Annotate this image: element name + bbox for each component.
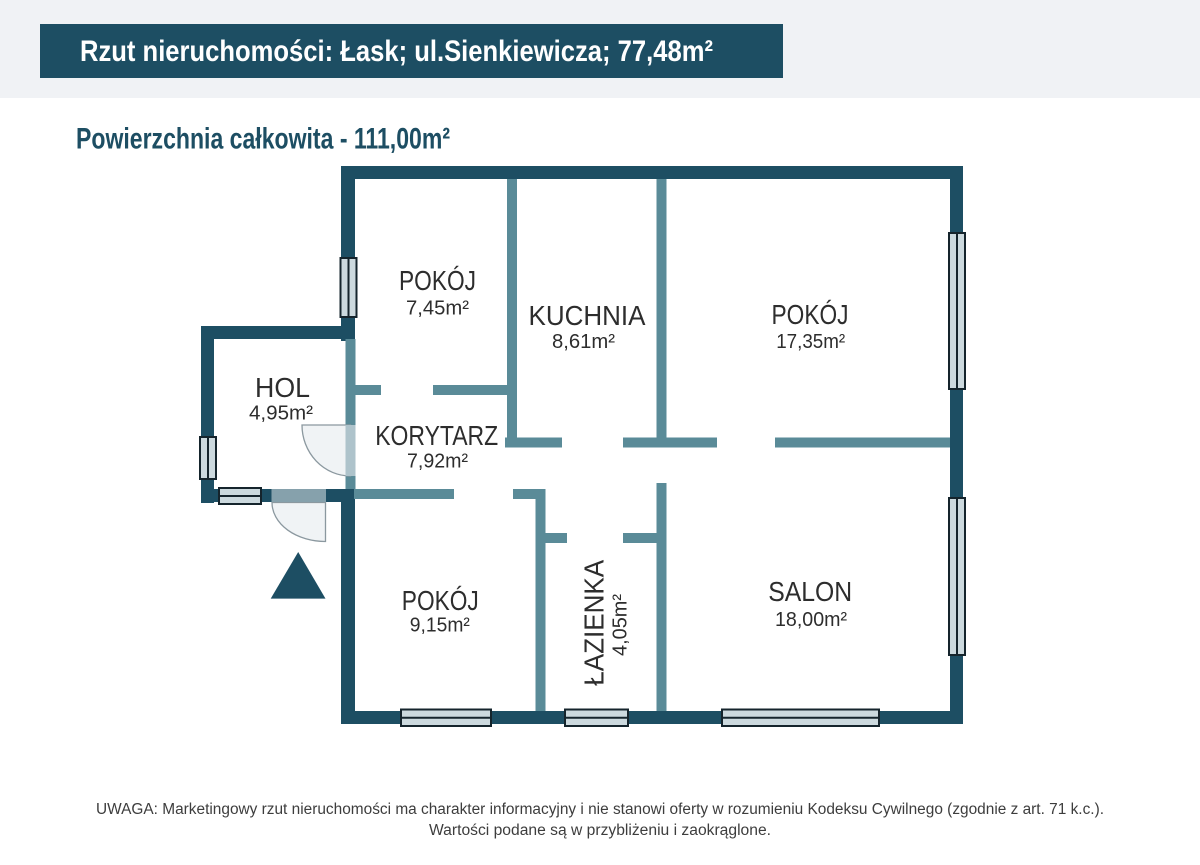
svg-text:KORYTARZ: KORYTARZ [375,420,498,451]
svg-text:Powierzchnia całkowita - 111,0: Powierzchnia całkowita - 111,00m² [76,123,450,156]
svg-text:Wartości podane są w przybliże: Wartości podane są w przybliżeniu i zaok… [429,822,771,839]
svg-text:SALON: SALON [768,576,852,607]
svg-text:Rzut nieruchomości: Łask; ul.S: Rzut nieruchomości: Łask; ul.Sienkiewicz… [80,35,713,68]
svg-text:KUCHNIA: KUCHNIA [529,300,646,331]
svg-text:18,00m²: 18,00m² [775,609,847,631]
svg-text:8,61m²: 8,61m² [552,331,615,353]
svg-text:7,92m²: 7,92m² [407,451,468,473]
svg-text:UWAGA: Marketingowy rzut nieru: UWAGA: Marketingowy rzut nieruchomości m… [96,801,1104,818]
svg-text:ŁAZIENKA: ŁAZIENKA [579,560,610,686]
svg-text:17,35m²: 17,35m² [776,331,845,353]
svg-text:4,95m²: 4,95m² [249,403,313,425]
svg-text:POKÓJ: POKÓJ [399,265,476,296]
svg-text:POKÓJ: POKÓJ [772,299,849,330]
svg-text:HOL: HOL [255,372,310,403]
svg-text:7,45m²: 7,45m² [406,298,469,320]
svg-text:POKÓJ: POKÓJ [402,585,479,616]
svg-text:4,05m²: 4,05m² [610,594,632,656]
svg-text:9,15m²: 9,15m² [410,615,470,637]
